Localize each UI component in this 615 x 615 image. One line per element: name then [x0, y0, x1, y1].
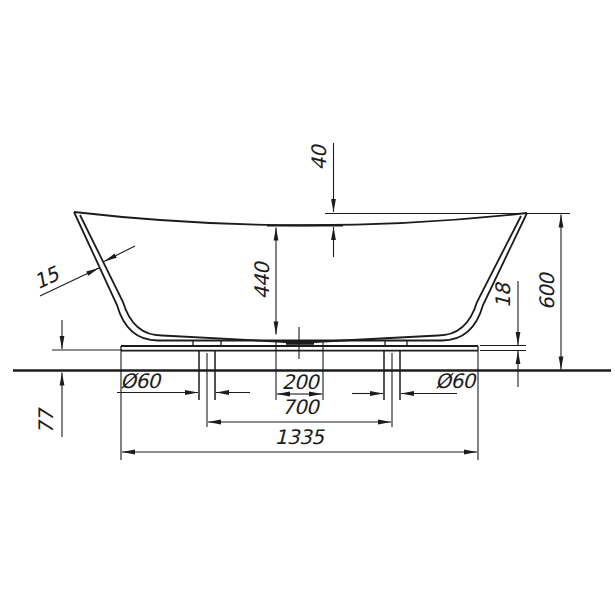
dim-label-200: 200 [282, 370, 321, 394]
dim-label-dia60-right: Ø60 [435, 369, 477, 393]
bathtub-outline [74, 212, 527, 342]
dim-label-600: 600 [535, 271, 559, 310]
inner-shell [80, 215, 521, 342]
dim-label-77: 77 [34, 407, 58, 434]
bathtub-technical-drawing: 40 440 15 18 600 77 Ø60 Ø60 200 700 1335 [0, 0, 615, 615]
dim-label-700: 700 [282, 395, 321, 419]
dim-label-40: 40 [307, 143, 331, 170]
outer-shell [74, 212, 527, 341]
dim-label-15: 15 [30, 261, 64, 294]
dim-label-440: 440 [250, 260, 274, 299]
base-plate [121, 327, 478, 359]
plate-thickness-ext-lines [480, 346, 526, 351]
drawing-svg: 40 440 15 18 600 77 Ø60 Ø60 200 700 1335 [0, 0, 615, 615]
dim-label-18: 18 [491, 281, 515, 308]
dim-label-1335: 1335 [275, 425, 326, 449]
dim-label-dia60-left: Ø60 [120, 369, 162, 393]
extension-lines [52, 214, 570, 461]
